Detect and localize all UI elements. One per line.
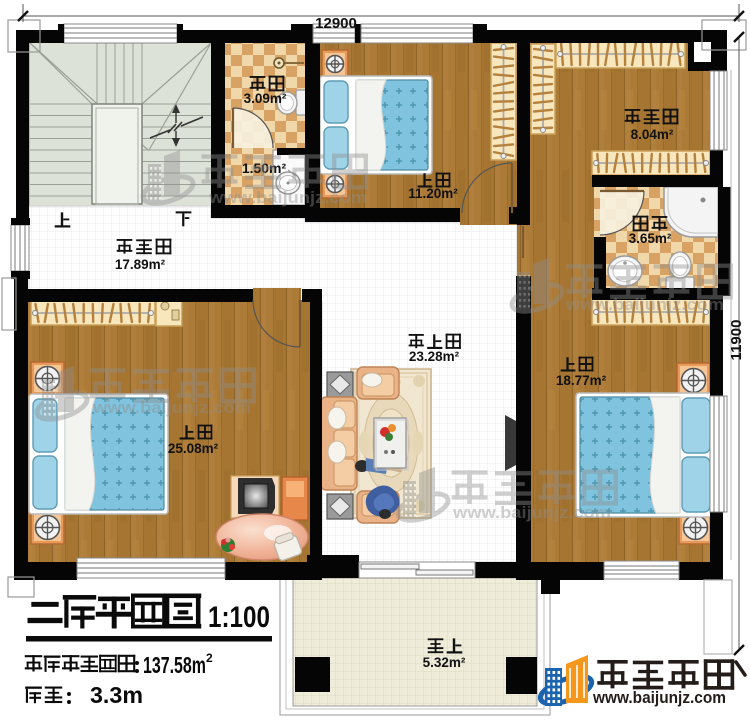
- svg-text:www.baijunjz.com: www.baijunjz.com: [592, 689, 726, 707]
- svg-text:137.58m: 137.58m: [143, 652, 206, 678]
- svg-text:11900: 11900: [728, 320, 745, 361]
- svg-text:www.baijunjz.com: www.baijunjz.com: [92, 398, 251, 417]
- svg-text:25.08m²: 25.08m²: [168, 441, 219, 456]
- svg-text:2: 2: [206, 651, 213, 665]
- svg-text:www.baijunjz.com: www.baijunjz.com: [208, 188, 367, 207]
- svg-text:3.65m²: 3.65m²: [629, 231, 672, 246]
- svg-text:18.77m²: 18.77m²: [556, 373, 607, 388]
- svg-text:12900: 12900: [315, 15, 357, 32]
- svg-text:www.baijunjz.com: www.baijunjz.com: [452, 503, 611, 522]
- svg-text:23.28m²: 23.28m²: [409, 349, 460, 364]
- svg-text:www.baijunjz.com: www.baijunjz.com: [565, 295, 724, 314]
- svg-text:8.04m²: 8.04m²: [631, 127, 674, 142]
- svg-text:5.32m²: 5.32m²: [423, 655, 466, 670]
- svg-text:1:100: 1:100: [208, 601, 270, 634]
- svg-text:3.3m: 3.3m: [90, 682, 143, 708]
- svg-text:3.09m²: 3.09m²: [244, 91, 287, 106]
- svg-text:11.20m²: 11.20m²: [408, 186, 458, 201]
- svg-text:17.89m²: 17.89m²: [115, 257, 166, 272]
